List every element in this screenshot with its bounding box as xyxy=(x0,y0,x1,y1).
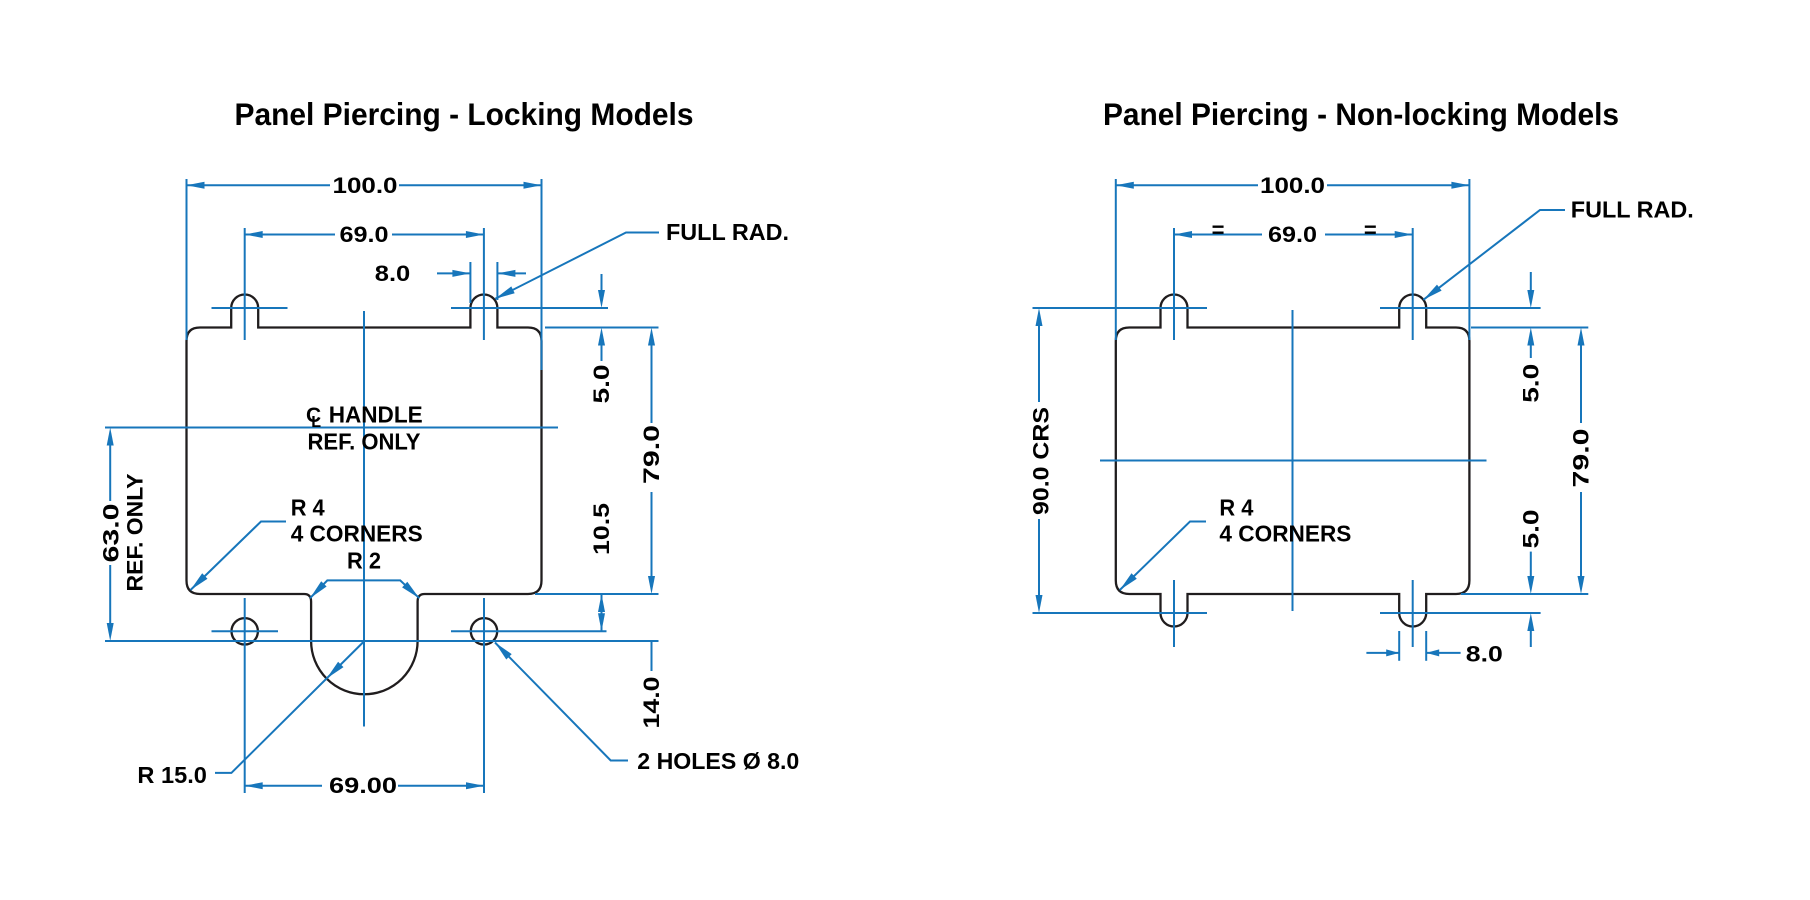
svg-text:5.0: 5.0 xyxy=(1518,510,1543,549)
svg-text:10.5: 10.5 xyxy=(589,503,614,555)
svg-text:69.00: 69.00 xyxy=(329,773,397,798)
svg-text:=: = xyxy=(1364,218,1377,243)
svg-text:69.0: 69.0 xyxy=(1268,222,1317,247)
svg-text:69.0: 69.0 xyxy=(340,222,389,247)
svg-text:90.0 CRS: 90.0 CRS xyxy=(1029,407,1054,515)
svg-text:HANDLE: HANDLE xyxy=(329,402,423,428)
svg-text:R 4: R 4 xyxy=(1219,495,1253,521)
svg-text:79.0: 79.0 xyxy=(639,425,664,484)
svg-text:REF. ONLY: REF. ONLY xyxy=(308,429,421,455)
svg-text:79.0: 79.0 xyxy=(1569,429,1594,488)
svg-text:2 HOLES Ø 8.0: 2 HOLES Ø 8.0 xyxy=(637,748,799,774)
svg-text:5.0: 5.0 xyxy=(1518,364,1543,403)
svg-text:R 4: R 4 xyxy=(291,495,325,521)
svg-text:=: = xyxy=(1212,218,1225,243)
svg-text:5.0: 5.0 xyxy=(589,365,614,404)
svg-text:100.0: 100.0 xyxy=(1260,173,1325,198)
svg-text:Panel Piercing - Non-locking M: Panel Piercing - Non-locking Models xyxy=(1103,96,1619,132)
svg-text:8.0: 8.0 xyxy=(1466,642,1503,667)
svg-text:14.0: 14.0 xyxy=(639,677,664,729)
svg-text:8.0: 8.0 xyxy=(375,261,411,286)
svg-text:FULL RAD.: FULL RAD. xyxy=(666,219,789,245)
svg-text:R 15.0: R 15.0 xyxy=(137,762,207,788)
svg-text:R 2: R 2 xyxy=(347,548,381,574)
svg-text:63.0: 63.0 xyxy=(99,504,124,563)
svg-text:REF. ONLY: REF. ONLY xyxy=(123,473,148,591)
svg-text:Panel Piercing - Locking Model: Panel Piercing - Locking Models xyxy=(235,96,694,132)
svg-text:4 CORNERS: 4 CORNERS xyxy=(1219,521,1351,547)
svg-text:100.0: 100.0 xyxy=(333,173,398,198)
svg-text:FULL RAD.: FULL RAD. xyxy=(1571,197,1694,223)
svg-text:4 CORNERS: 4 CORNERS xyxy=(291,521,423,547)
